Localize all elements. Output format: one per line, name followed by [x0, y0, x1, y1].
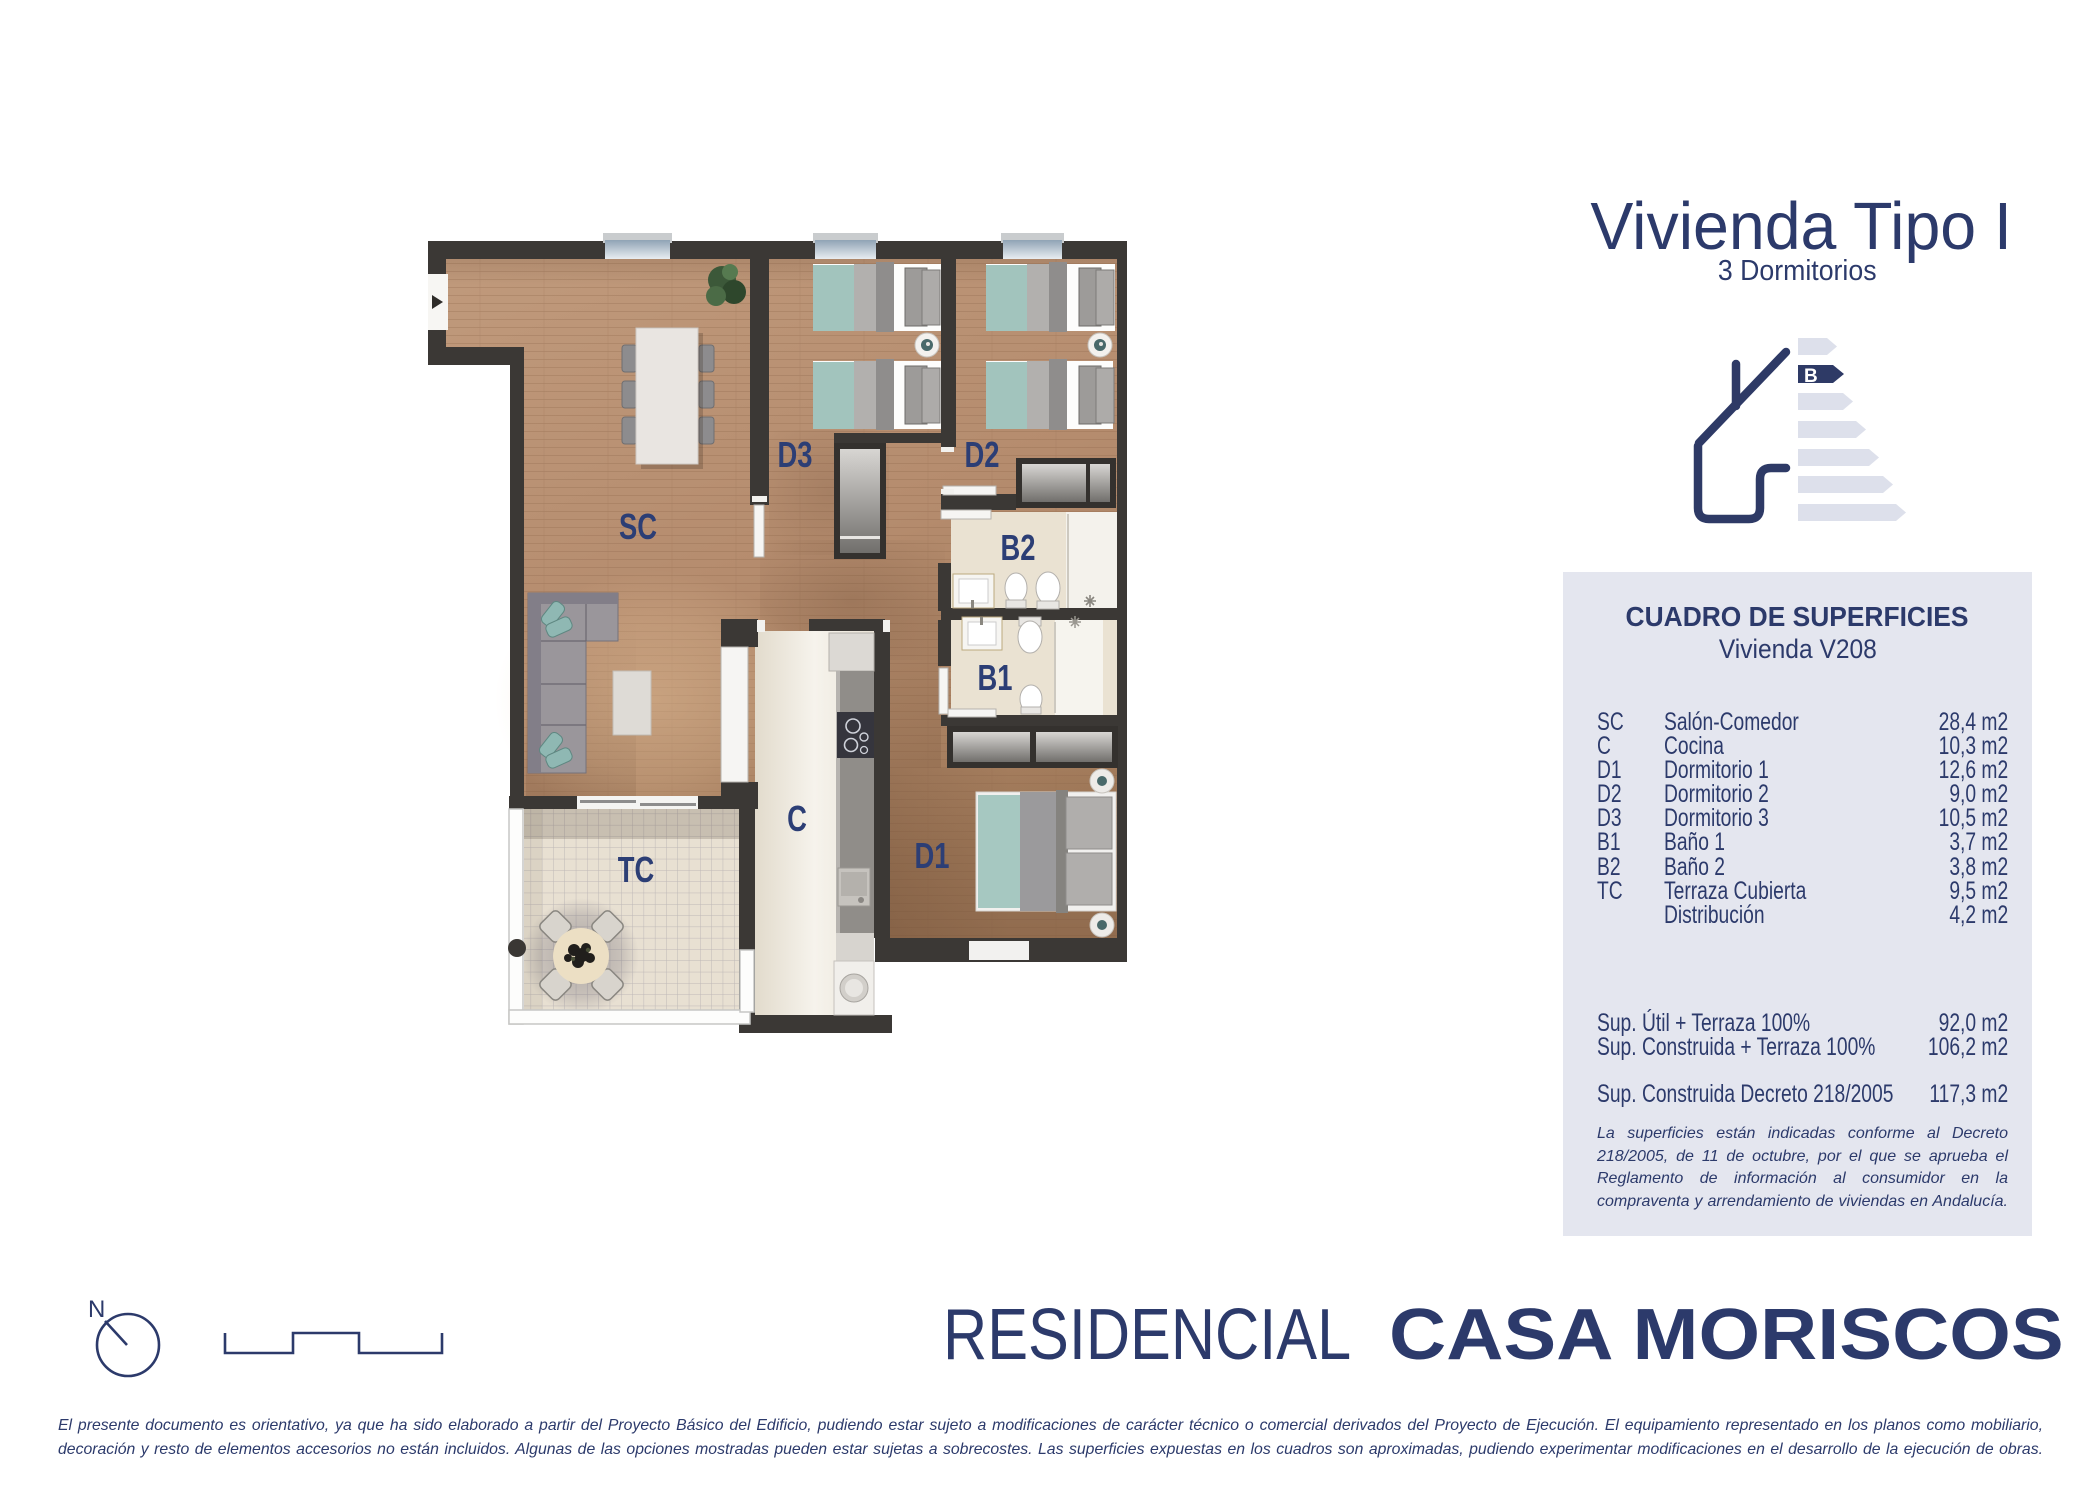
- svg-text:B2: B2: [1001, 527, 1036, 568]
- svg-text:D1: D1: [915, 835, 950, 876]
- svg-text:N: N: [88, 1296, 105, 1323]
- svg-text:SC: SC: [619, 506, 657, 547]
- svg-text:TC: TC: [618, 849, 654, 890]
- svg-text:C: C: [787, 798, 807, 839]
- svg-text:B: B: [1804, 366, 1818, 387]
- svg-text:D2: D2: [965, 434, 1000, 475]
- svg-text:D3: D3: [778, 434, 813, 475]
- svg-text:B1: B1: [978, 657, 1013, 698]
